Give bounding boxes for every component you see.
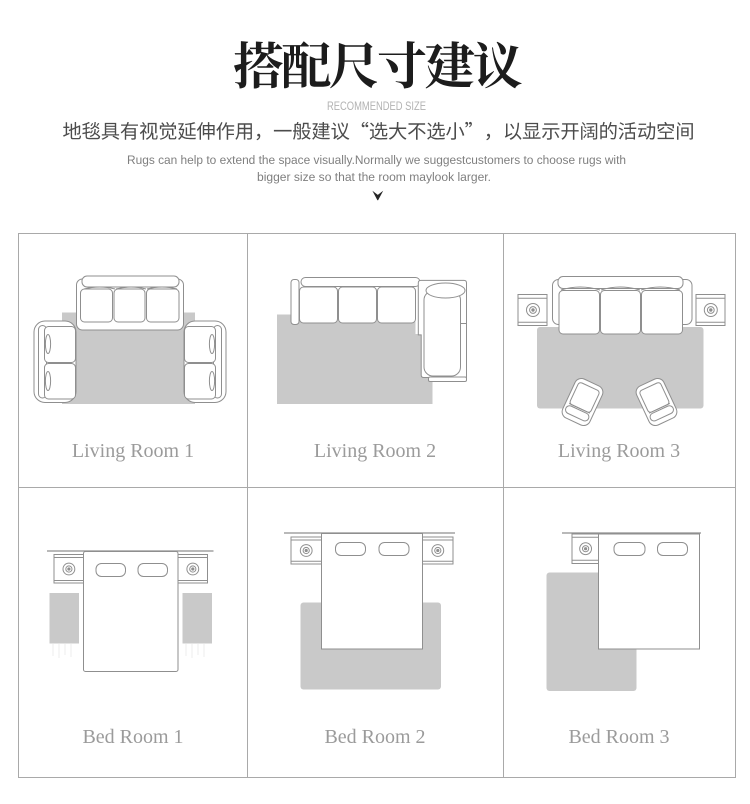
svg-text:Living Room 3: Living Room 3 bbox=[558, 440, 680, 462]
svg-text:Living Room 2: Living Room 2 bbox=[314, 440, 436, 462]
svg-text:Living Room 1: Living Room 1 bbox=[72, 440, 194, 462]
svg-text:Bed Room 3: Bed Room 3 bbox=[568, 726, 669, 748]
svg-text:Rugs can help to extend th: Rugs can help to extend the space visual… bbox=[127, 153, 626, 167]
svg-text:Bed Room 1: Bed Room 1 bbox=[82, 726, 183, 748]
svg-text:bigger size so that the room: bigger size so that the room maylook lar… bbox=[257, 170, 491, 184]
svg-text:RECOMMENDED SIZE: RECOMMENDED SIZE bbox=[327, 99, 426, 113]
svg-text:Bed Room 2: Bed Room 2 bbox=[324, 726, 425, 748]
